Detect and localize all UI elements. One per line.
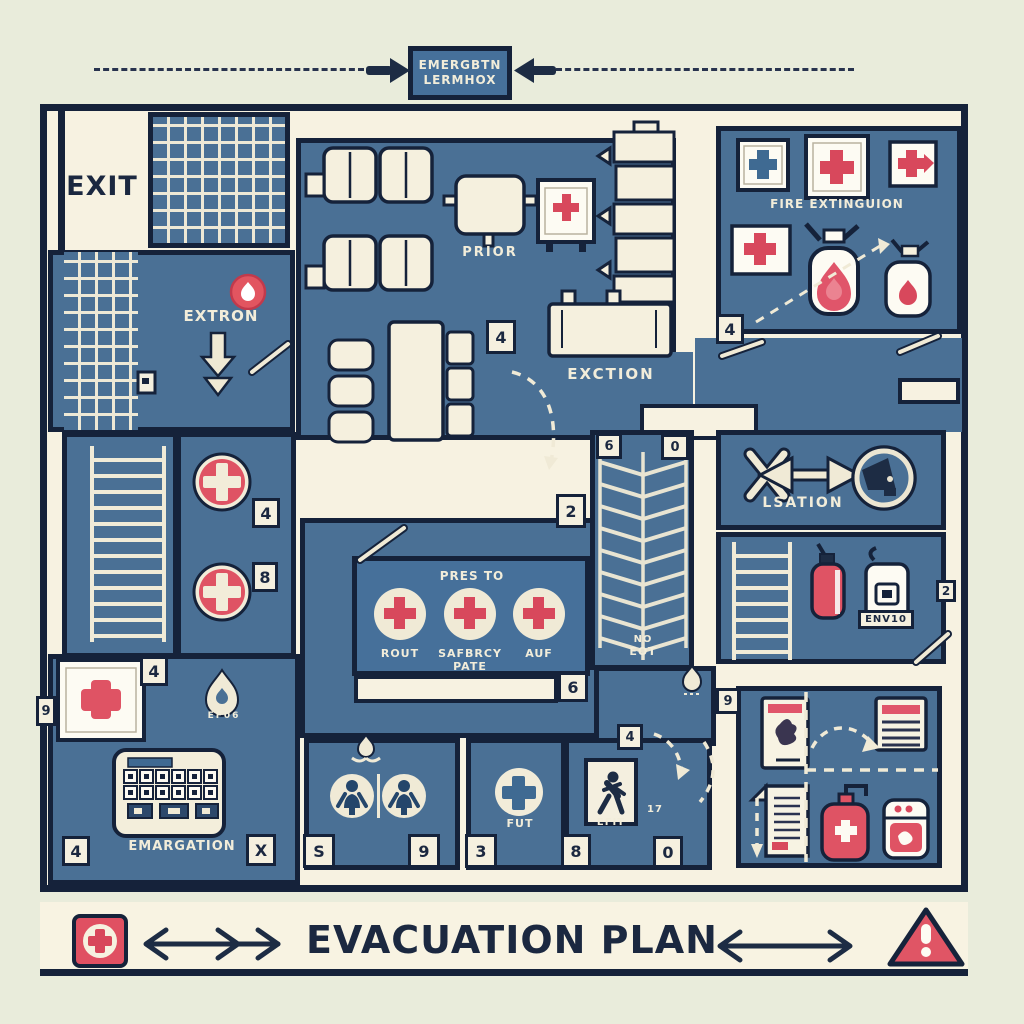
marker-corridor: 6 <box>558 672 588 702</box>
marker-exit-room-a: 8 <box>561 834 591 868</box>
room-lobby-exit <box>594 666 716 746</box>
marker-exit-room-b: 0 <box>653 836 683 868</box>
evacuation-plan-poster: EMERGBTN LERMHOX <box>0 0 1024 1024</box>
exit-label: EXIT <box>62 172 142 202</box>
flame-store-label: EF06 <box>196 712 252 722</box>
panel-title-label: PRES TO <box>412 570 532 583</box>
room-medical <box>176 432 296 658</box>
exction-label: EXCTION <box>556 366 666 383</box>
marker-stair-top-left: 6 <box>596 433 622 459</box>
room-stairs-topleft <box>148 112 290 248</box>
fire-room-label: FIRE EXTINGUION <box>742 198 932 211</box>
panel-item2b-label: PATE <box>446 661 494 673</box>
extron-label: EXTRON <box>176 308 266 325</box>
panel-item2a-label: SAFBRCY <box>438 648 502 660</box>
ladder-left <box>90 446 166 642</box>
marker-supply-top: 4 <box>140 656 168 686</box>
marker-bottom-x: X <box>246 834 276 866</box>
emergency-sign-line2: LERMHOX <box>423 73 496 88</box>
marker-mid-room: 4 <box>486 320 516 354</box>
stairs-grid-left <box>64 252 138 430</box>
header-arrow-right-icon <box>366 58 410 83</box>
marker-right-edge: 2 <box>936 580 956 602</box>
marker-stair-side: 2 <box>556 494 586 528</box>
no-exit-label-line2: EOT <box>614 646 672 658</box>
marker-storage-top: 9 <box>716 688 740 714</box>
plan-title: EVACUATION PLAN <box>302 914 722 966</box>
panel-item3-label: AUF <box>516 648 562 660</box>
ladder-right <box>732 542 792 660</box>
marker-fire-room: 4 <box>716 314 744 344</box>
no-exit-label-line1: NO <box>618 634 668 645</box>
emergency-sign-line1: EMERGBTN <box>419 58 502 73</box>
marker-stair-top-right: 0 <box>661 434 689 460</box>
marker-restroom-a: S <box>303 834 335 868</box>
route-dash-left <box>94 68 364 71</box>
bench-right-edge <box>898 378 960 404</box>
marker-medical-a: 4 <box>252 498 280 528</box>
room-assembly <box>716 430 946 530</box>
marker-restroom-b: 9 <box>408 834 440 868</box>
prior-label: PRIOR <box>450 246 530 260</box>
header-arrow-left-icon <box>514 58 556 83</box>
room-fire-equipment <box>716 126 962 334</box>
fut-label: FUT <box>498 818 542 830</box>
corridor-center <box>354 675 558 703</box>
room-number-label: 17 <box>640 804 670 815</box>
marker-exit-room-top: 4 <box>617 724 643 750</box>
marker-bottom-left: 4 <box>62 836 90 866</box>
exit-sign-label: EFIT <box>588 817 634 828</box>
emargation-label: EMARGATION <box>104 840 260 854</box>
route-dash-right <box>556 68 854 71</box>
marker-firstaid-room: 3 <box>465 834 497 868</box>
lsation-label: LSATION <box>748 496 858 511</box>
device-label: ENV10 <box>858 610 914 629</box>
marker-medical-b: 8 <box>252 562 278 592</box>
emergency-sign: EMERGBTN LERMHOX <box>408 46 512 100</box>
panel-item1-label: ROUT <box>372 648 428 660</box>
room-supplies <box>736 686 942 868</box>
marker-far-left: 9 <box>36 696 56 726</box>
